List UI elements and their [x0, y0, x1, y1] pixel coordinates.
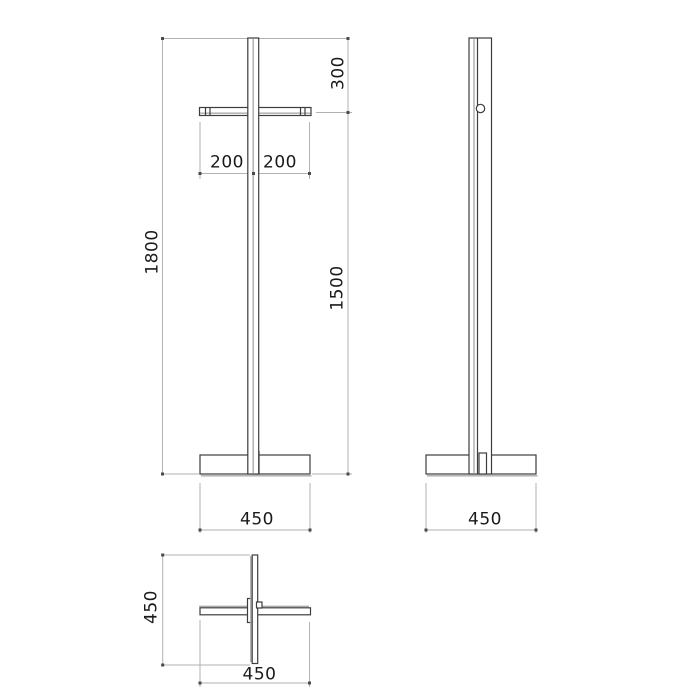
- plan-base-strip: [251, 555, 258, 664]
- plan-dimension-lines: [161, 555, 310, 687]
- side-base-socket: [479, 453, 487, 474]
- drawing-svg: [0, 0, 700, 700]
- side-pole: [469, 38, 492, 474]
- dim-label-top-to-crossbar: 300: [330, 56, 347, 90]
- dim-label-plan-depth: 450: [144, 590, 161, 624]
- front-view: [161, 37, 352, 533]
- side-pole-hole: [476, 104, 484, 112]
- front-pole: [248, 38, 259, 474]
- dim-label-plan-width: 450: [243, 667, 277, 684]
- drawing-canvas: 1800 300 1500 200 200 450 450 450 450: [0, 0, 700, 700]
- plan-fixing-block: [257, 602, 263, 608]
- dim-label-crossbar-left-half: 200: [210, 155, 244, 172]
- dim-label-crossbar-to-base: 1500: [329, 265, 346, 310]
- plan-view: [161, 554, 311, 688]
- dim-label-side-base-width: 450: [468, 512, 502, 529]
- dim-label-overall-height: 1800: [144, 229, 161, 274]
- side-view: [425, 38, 538, 533]
- dim-label-crossbar-right-half: 200: [263, 155, 297, 172]
- dim-label-front-base-width: 450: [240, 512, 274, 529]
